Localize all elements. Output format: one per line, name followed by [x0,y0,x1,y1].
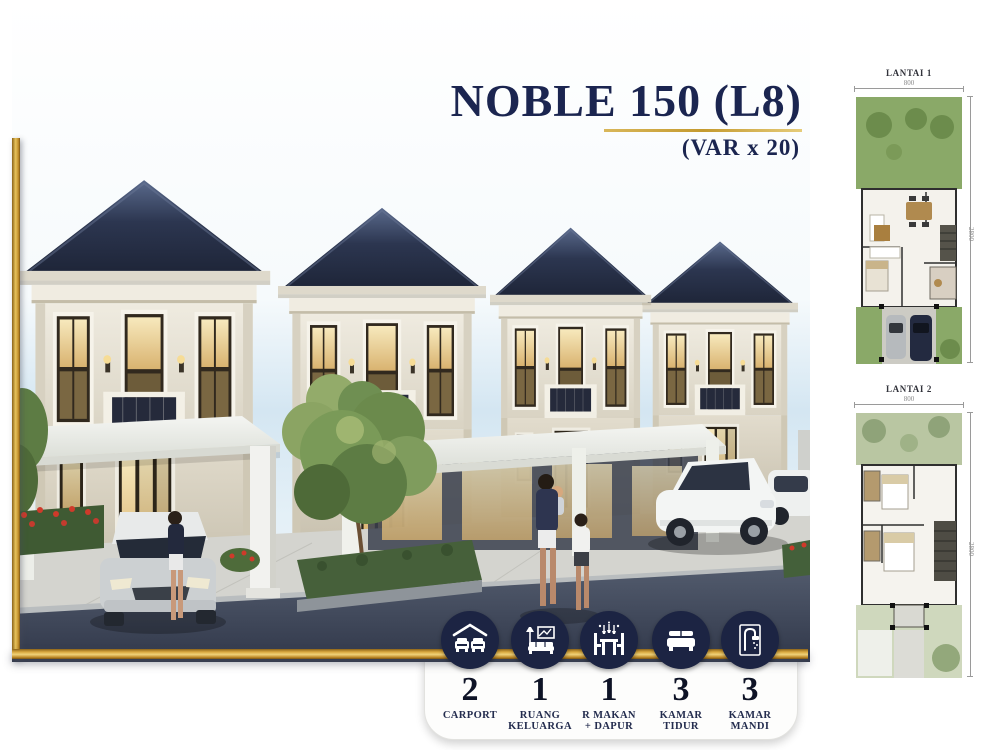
floor-plan-depth-dim: 2800 [967,227,975,241]
title-variant: (VAR x 20) [440,135,802,161]
floor-plan-1-drawing [854,97,964,364]
floor-plan-depth-dim: 2800 [967,542,975,556]
floor-plan-2-drawing [854,413,964,678]
title-underline [604,129,802,132]
floor-plan-label: LANTAI 1 [845,68,973,78]
floor-plan-width-dim: 800 [845,80,973,87]
brochure-page: NOBLE 150 (L8) (VAR x 20) LANTAI 1 800 [0,0,1000,750]
title-block: NOBLE 150 (L8) (VAR x 20) [440,78,802,161]
page-title: NOBLE 150 (L8) [440,78,802,124]
floor-plan-lantai-2: LANTAI 2 800 [845,384,973,678]
dimension-line-side: 2800 [964,412,971,677]
gold-frame-bottom [12,649,808,659]
floor-plan-label: LANTAI 2 [845,384,973,394]
floor-plan-lantai-1: LANTAI 1 800 [845,68,973,364]
floor-plan-width-dim: 800 [845,396,973,403]
gold-frame-left [12,138,20,659]
dimension-line-top [854,88,964,95]
dimension-line-side: 2800 [964,96,971,363]
dimension-line-top [854,404,964,411]
